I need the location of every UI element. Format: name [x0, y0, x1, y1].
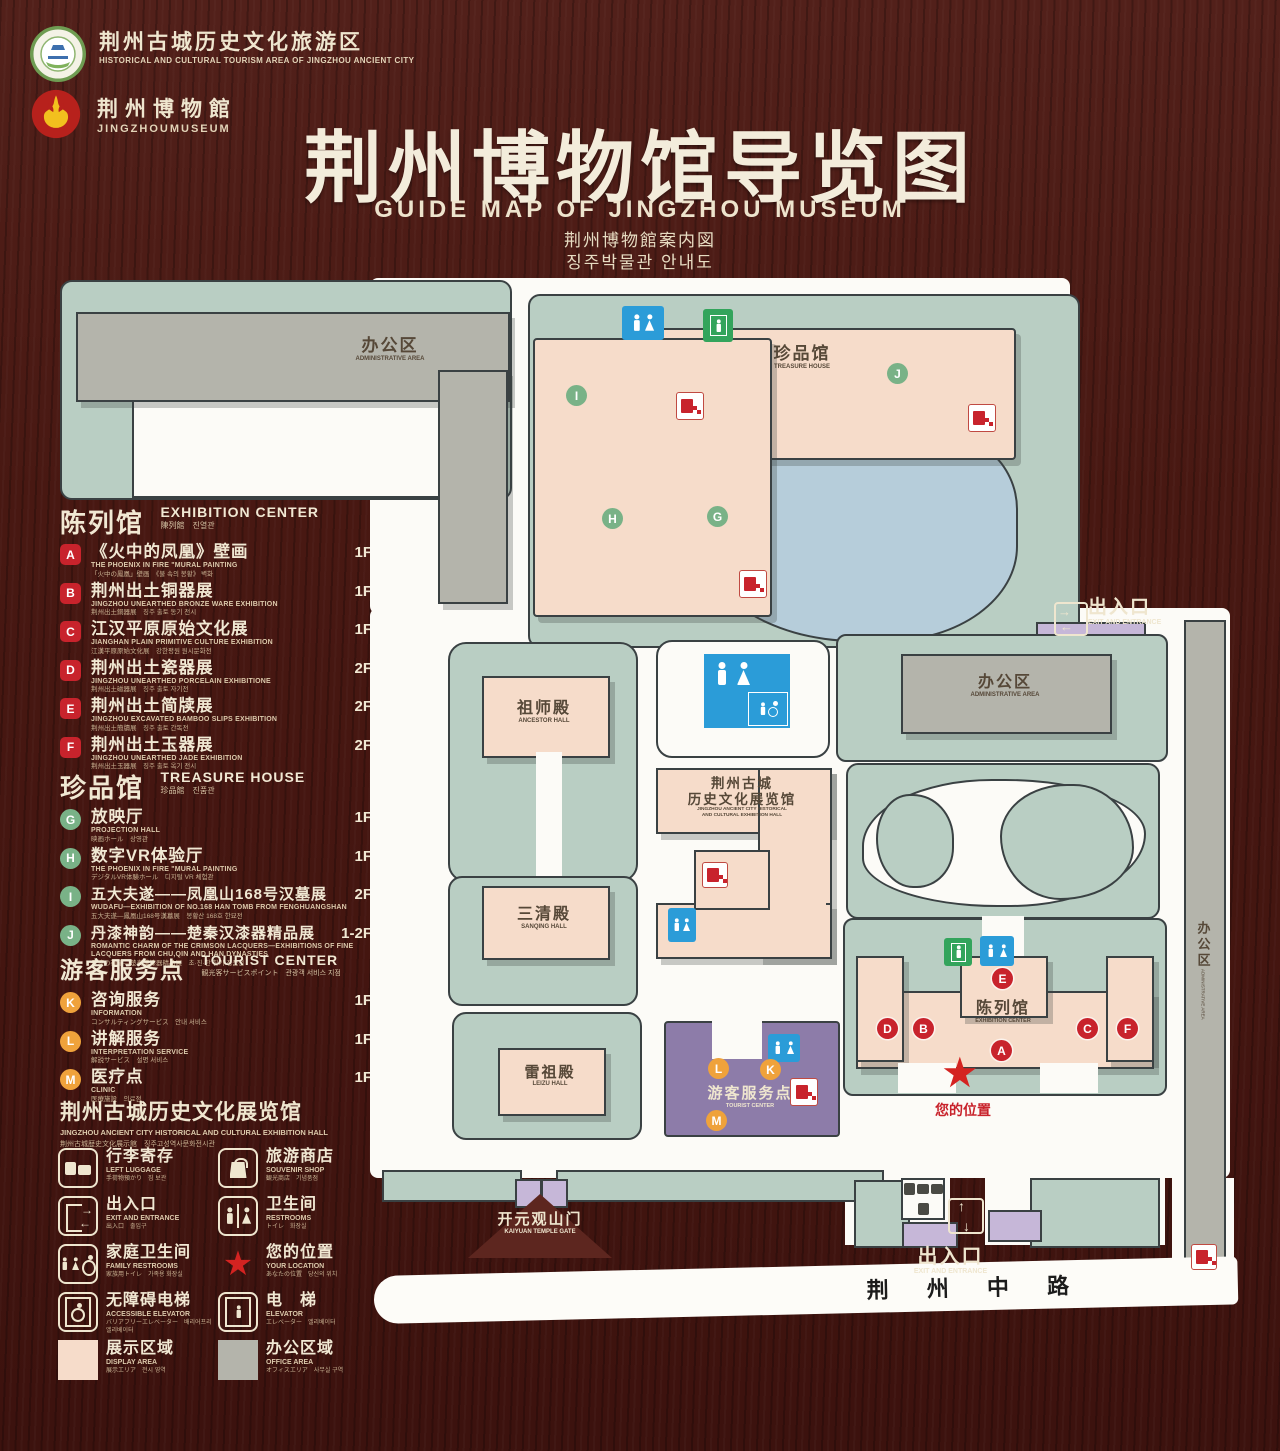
- restroom-block: [704, 654, 790, 728]
- restroom-icon: [768, 1034, 800, 1062]
- label-leizu-hall: 雷祖殿 LEIZU HALL: [498, 1064, 602, 1088]
- road-jingzhou-middle: 荆 州 中 路: [373, 1256, 1238, 1324]
- label-exit-south: 出入口 EXIT AND ENTRANCE: [893, 1246, 1008, 1276]
- south-lawn-strip-east: [556, 1170, 884, 1202]
- restroom-icon: [980, 936, 1014, 966]
- map-marker-a: A: [991, 1040, 1012, 1061]
- map-marker-i: I: [566, 385, 587, 406]
- guide-map-sign: { "header": { "badge1_zh": "荆州古城历史文化旅游区"…: [0, 0, 1280, 1451]
- garden-island-east: [1000, 784, 1134, 900]
- map-marker-l: L: [708, 1058, 729, 1079]
- escalator-icon: [968, 404, 996, 432]
- label-exit-east: 出入口 EXIT AND ENTRANCE: [1088, 598, 1218, 627]
- elevator-icon: [944, 938, 972, 966]
- label-kaiyuan-gate: 开元观山门 KAIYUAN TEMPLE GATE: [470, 1212, 610, 1235]
- building-join-patch: [441, 373, 501, 399]
- courtyard-northwest: [132, 396, 448, 498]
- map-marker-h: H: [602, 508, 623, 529]
- site-map: 办公区 ADMINISTRATIVE AREA 珍品馆 TREASURE HOU…: [0, 0, 1280, 1451]
- map-marker-k: K: [760, 1059, 781, 1080]
- map-marker-j: J: [887, 363, 908, 384]
- restroom-icon: [668, 908, 696, 942]
- left-luggage-map-icon: [901, 1178, 945, 1220]
- entrance-arrows-icon: ↑ ↓: [948, 1198, 984, 1234]
- map-marker-e: E: [992, 968, 1013, 989]
- path-between-halls: [536, 752, 562, 888]
- escalator-icon: [739, 570, 767, 598]
- entrance-arrows-icon: → ←: [1054, 602, 1088, 636]
- your-location-star: ★: [941, 1051, 979, 1095]
- label-treasure-house: 珍品馆 TREASURE HOUSE: [742, 344, 862, 370]
- courtyard-notch: [1040, 1063, 1098, 1093]
- map-marker-g: G: [707, 506, 728, 527]
- label-exhibition-center: 陈列馆 EXHIBITION CENTER: [930, 1000, 1076, 1025]
- map-marker-d: D: [877, 1018, 898, 1039]
- label-admin-strip: 办公区 ADMINISTRATIVE AREA: [1184, 870, 1222, 1070]
- south-lawn-pocket-east: [1030, 1178, 1160, 1248]
- courtyard-notch: [712, 1019, 762, 1059]
- escalator-icon: [702, 862, 728, 888]
- map-marker-b: B: [913, 1018, 934, 1039]
- label-ancestor-hall: 祖师殿 ANCESTOR HALL: [484, 700, 604, 725]
- map-marker-c: C: [1077, 1018, 1098, 1039]
- family-restroom-sub-icon: [748, 692, 788, 726]
- escalator-icon: [1191, 1244, 1217, 1270]
- label-tourist-center: 游客服务点 TOURIST CENTER: [676, 1086, 824, 1109]
- label-your-location: 您的位置: [913, 1100, 1013, 1120]
- building-admin-northwest-wing: [438, 370, 508, 604]
- gate-south-east: [988, 1210, 1042, 1242]
- escalator-icon: [676, 392, 704, 420]
- label-admin-northwest: 办公区 ADMINISTRATIVE AREA: [300, 336, 480, 362]
- restroom-icon: [622, 306, 664, 340]
- garden-island-west: [876, 794, 954, 888]
- south-lawn-strip-west: [382, 1170, 522, 1202]
- map-marker-f: F: [1117, 1018, 1138, 1039]
- map-marker-m: M: [706, 1110, 727, 1131]
- label-sanqing-hall: 三清殿 SANQING HALL: [484, 906, 604, 931]
- label-admin-east: 办公区 ADMINISTRATIVE AREA: [920, 674, 1090, 699]
- elevator-icon: [703, 309, 733, 342]
- label-exhibition-hall: 荆州古城 历史文化展览馆 JINGZHOU ANCIENT CITY HISTO…: [658, 776, 826, 818]
